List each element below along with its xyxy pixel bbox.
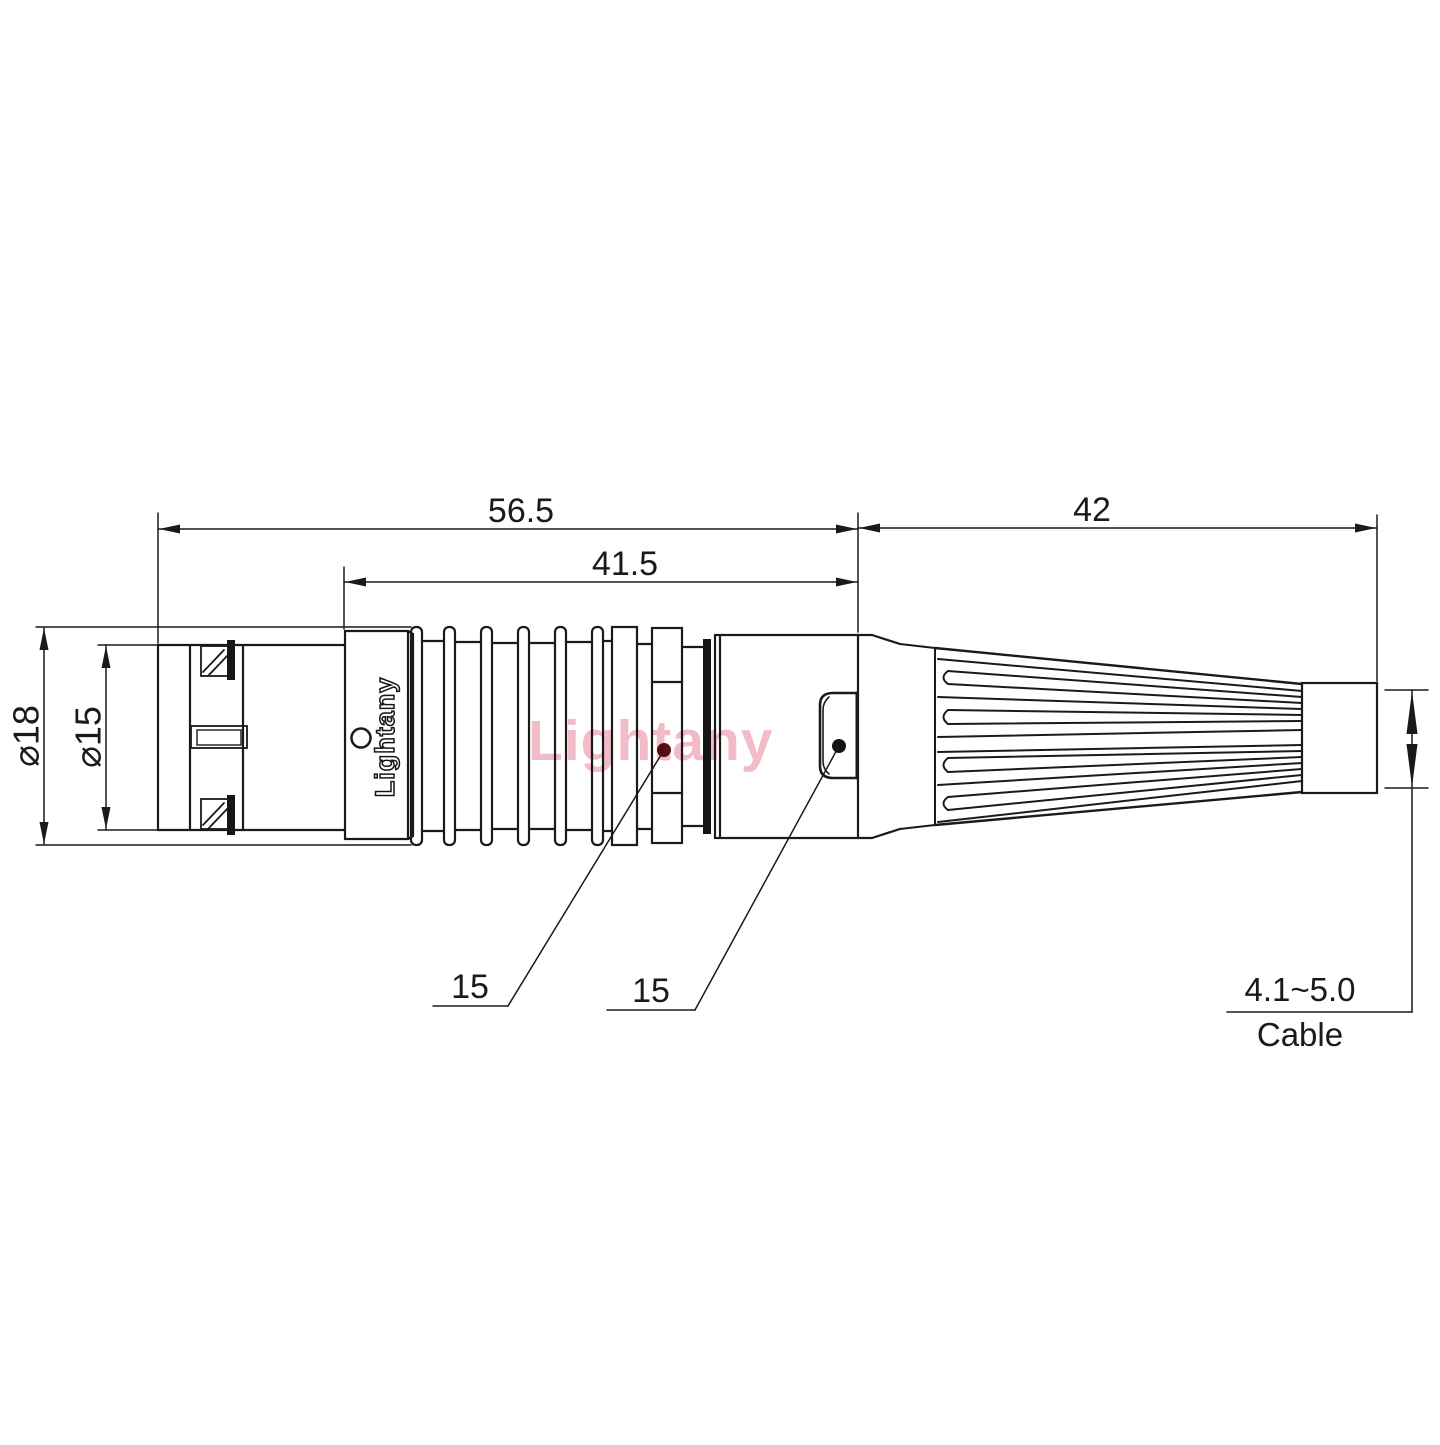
slot-key-bar — [227, 640, 235, 680]
arrowhead-left — [345, 578, 366, 587]
body-index-circle — [352, 729, 371, 748]
arrowhead-up — [102, 646, 111, 668]
callout-15-backshell: 15 — [607, 739, 846, 1010]
collar-ring — [652, 628, 682, 843]
arrowhead-right — [836, 525, 857, 534]
latch-window-inner — [823, 697, 829, 774]
boot-envelope-top — [935, 648, 1302, 684]
dimension-body-41-5: 41.5 — [344, 545, 858, 629]
bend-relief-boot — [900, 644, 1302, 829]
arrowhead-left — [859, 524, 880, 533]
key-slot-bottom — [201, 795, 235, 835]
fin-line — [938, 781, 1302, 822]
grip-rib — [518, 627, 529, 845]
boot-collar-top — [900, 644, 935, 648]
grip-rib — [481, 627, 492, 845]
arrowhead-up — [40, 628, 49, 650]
dimension-overall-56-5: 56.5 — [158, 492, 858, 643]
fin-slot-cap — [944, 758, 949, 772]
fin-line — [948, 710, 1302, 715]
dimension-dia15: ⌀15 — [68, 645, 167, 830]
hatch-line — [203, 803, 224, 825]
boot-collar-bottom — [900, 825, 935, 829]
grip-end-ring — [612, 627, 637, 845]
arrowhead-right — [836, 578, 857, 587]
grip-rib — [444, 627, 455, 845]
dim-label-dia15: ⌀15 — [68, 706, 109, 768]
nut-mid-window-inner — [197, 730, 241, 745]
dim-label-overall: 56.5 — [488, 492, 554, 530]
hatch-line — [203, 650, 224, 672]
fin-line — [938, 697, 1302, 709]
connector-main-body: Lightany — [345, 631, 413, 839]
arrowhead-left — [159, 525, 180, 534]
backshell — [715, 635, 900, 838]
hatch-line — [208, 655, 228, 676]
boot-envelope-bottom — [935, 792, 1302, 825]
step-chamfer-bottom — [872, 829, 900, 838]
ribbed-grip-section — [411, 627, 612, 845]
fin-line — [938, 745, 1302, 752]
fin-slot-cap — [944, 797, 949, 810]
fin-line — [948, 721, 1302, 724]
body-marking-text: Lightany — [370, 677, 400, 798]
grip-rib — [555, 627, 566, 845]
dimension-dia18: ⌀18 — [6, 627, 412, 845]
tip-outline — [1302, 683, 1377, 793]
cable-exit-tip — [1302, 683, 1377, 793]
grip-rib — [592, 627, 603, 845]
cable-word-label: Cable — [1257, 1016, 1343, 1053]
callout-label-1: 15 — [451, 968, 489, 1006]
leader-line — [695, 746, 839, 1010]
key-slot-top — [201, 640, 235, 680]
latch-window — [820, 693, 857, 778]
fin-line — [938, 730, 1302, 737]
slot-key-bar — [227, 795, 235, 835]
leader-dot — [832, 739, 846, 753]
arrowhead-down — [1407, 744, 1418, 787]
dim-label-dia18: ⌀18 — [6, 705, 47, 767]
fin-slot-cap — [944, 671, 949, 684]
hatch-line — [208, 808, 228, 829]
arrowhead-down — [102, 807, 111, 829]
callout-15-collar: 15 — [433, 743, 671, 1006]
leader-line — [508, 750, 664, 1006]
fin-line — [948, 751, 1302, 758]
leader-dot — [657, 743, 671, 757]
connector-front-nut — [158, 640, 345, 835]
connector-technical-drawing: 56.5 41.5 42 ⌀18 ⌀15 — [0, 0, 1440, 1440]
arrowhead-up — [1407, 691, 1418, 734]
cable-range-label: 4.1~5.0 — [1244, 971, 1355, 1008]
arrowhead-right — [1355, 524, 1376, 533]
fin-line — [948, 757, 1302, 772]
dim-label-boot: 42 — [1073, 491, 1111, 529]
gasket-ring — [703, 639, 711, 834]
arrowhead-down — [40, 822, 49, 844]
step-chamfer-top — [872, 635, 900, 644]
fin-slot-cap — [944, 710, 949, 724]
callout-label-2: 15 — [632, 972, 670, 1010]
drawing-canvas: 56.5 41.5 42 ⌀18 ⌀15 — [0, 0, 1440, 1440]
dim-label-body: 41.5 — [592, 545, 658, 583]
